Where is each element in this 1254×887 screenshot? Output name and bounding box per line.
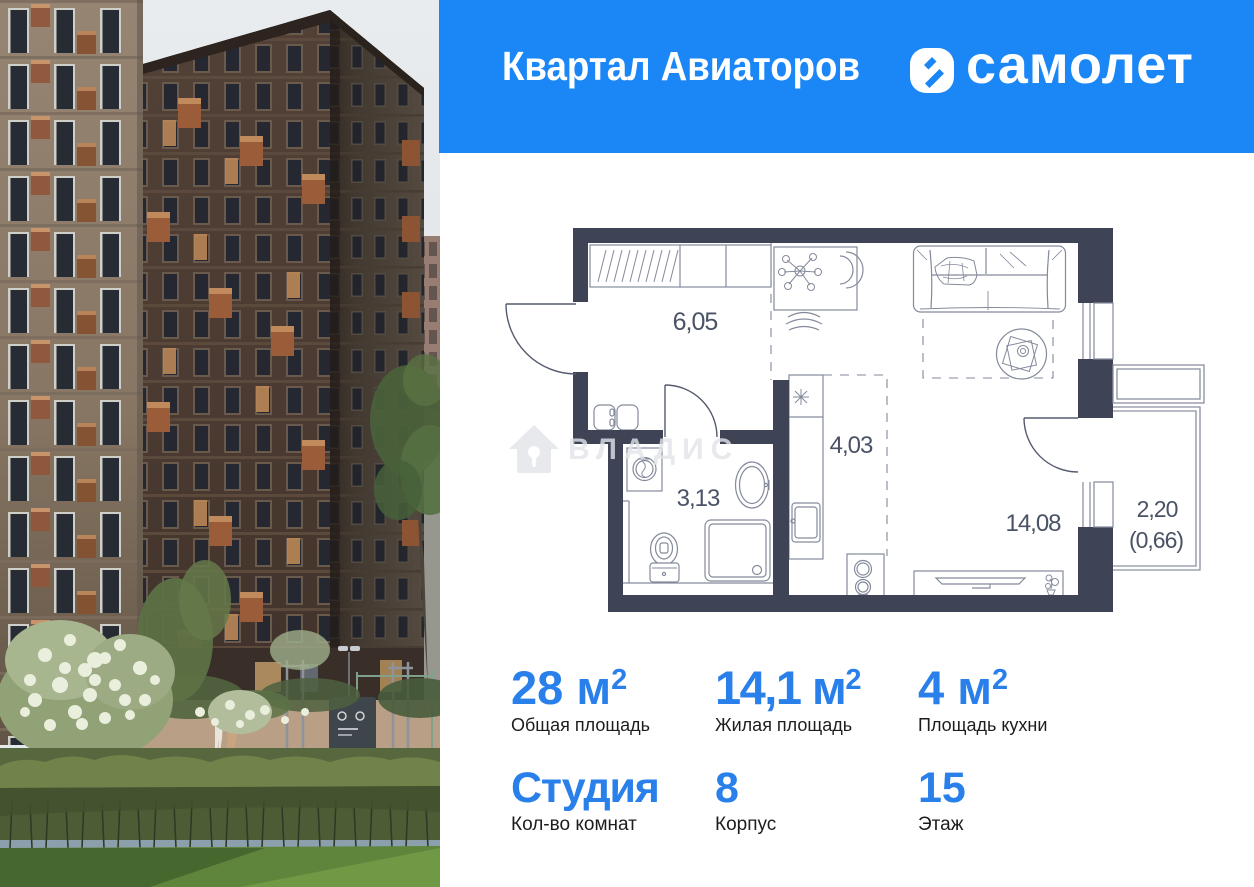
svg-text:самолет: самолет — [966, 40, 1194, 95]
svg-text:14,08: 14,08 — [1005, 510, 1061, 537]
svg-text:6,05: 6,05 — [673, 308, 718, 336]
svg-text:2,20: 2,20 — [1137, 496, 1178, 522]
svg-text:(0,66): (0,66) — [1129, 527, 1183, 553]
svg-text:3,13: 3,13 — [677, 485, 720, 512]
svg-text:4,03: 4,03 — [830, 432, 873, 459]
svg-text:ВЛАДИС: ВЛАДИС — [568, 433, 739, 466]
